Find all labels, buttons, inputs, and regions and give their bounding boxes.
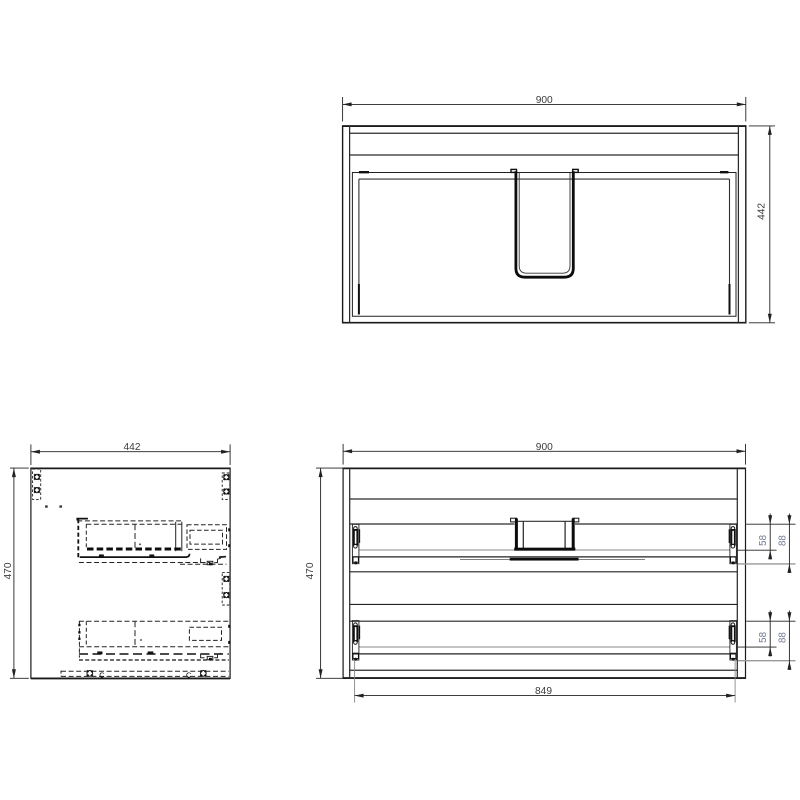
- svg-text:849: 849: [535, 686, 552, 697]
- svg-text:900: 900: [536, 442, 553, 453]
- svg-text:470: 470: [305, 562, 316, 579]
- svg-text:442: 442: [757, 203, 768, 220]
- svg-text:58: 58: [758, 631, 769, 642]
- svg-text:88: 88: [778, 535, 789, 546]
- svg-text:470: 470: [3, 562, 14, 579]
- svg-text:88: 88: [778, 632, 789, 643]
- svg-text:C: C: [186, 670, 192, 679]
- svg-text:C: C: [99, 670, 105, 679]
- svg-text:58: 58: [758, 534, 769, 545]
- svg-text:900: 900: [536, 95, 553, 106]
- svg-text:442: 442: [124, 442, 141, 453]
